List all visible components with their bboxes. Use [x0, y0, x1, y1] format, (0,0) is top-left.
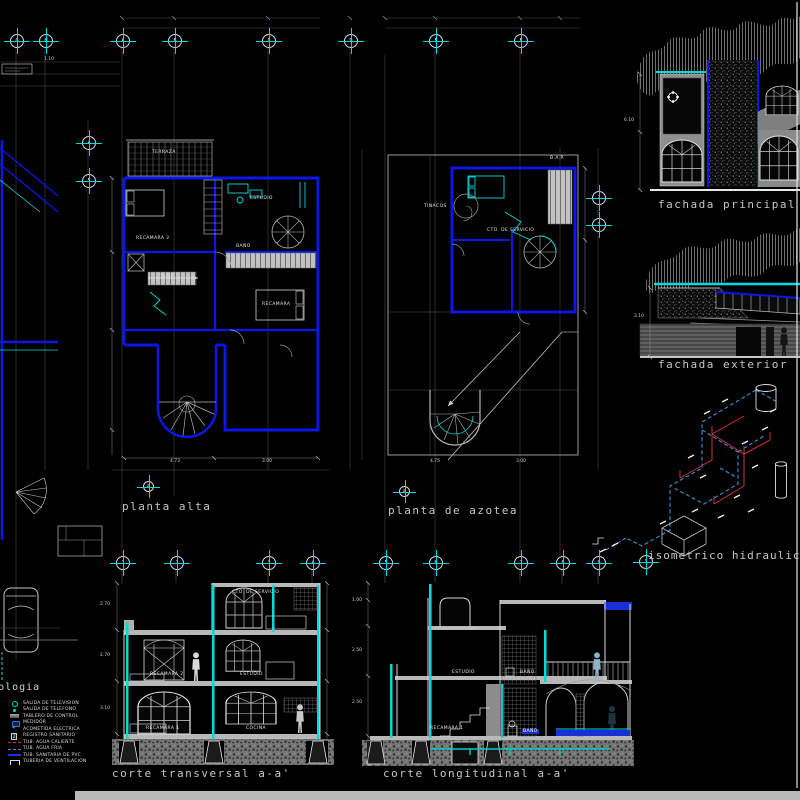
title-isometrico: isometrico hidraulico	[648, 549, 800, 562]
grid-bubble: 4	[306, 556, 320, 570]
grid-bubble: A	[116, 34, 130, 48]
phone-outlet-icon	[8, 707, 21, 713]
dimension-text: 3.00	[262, 459, 272, 464]
dimension-text: 1.00	[352, 598, 362, 603]
grid-bubble: 5	[82, 174, 96, 188]
isometrico-hidraulico	[592, 385, 787, 557]
cad-canvas[interactable]: G H A B C D E F 4 5 2 3 1 2 3 4 5 6 7 8 …	[0, 0, 800, 800]
room-label: TINACOS	[424, 204, 447, 209]
section-room-label: BAÑO	[520, 670, 535, 675]
pvc-pipe-icon	[8, 752, 21, 758]
legend-title: simbologia	[0, 682, 40, 693]
legend-label: ACOMETIDA ELECTRICA	[23, 727, 80, 732]
legend-label: SALIDA DE TELEFONO	[23, 707, 76, 712]
grid-bubble: F	[514, 34, 528, 48]
grid-bubble: 5	[379, 556, 393, 570]
title-fachada-principal: fachada principal	[658, 198, 796, 211]
section-room-label: ESTUDIO	[452, 670, 475, 675]
dimension-text: 4.73	[170, 459, 180, 464]
cold-water-pipe-icon	[8, 746, 21, 752]
legend-label: TUBERIA DE VENTILACION	[23, 759, 86, 764]
planta-alta-plan	[110, 140, 320, 460]
vent-pipe-icon	[8, 759, 21, 765]
left-partial-plan	[0, 64, 102, 680]
corte-longitudinal-section	[362, 570, 634, 766]
legend-label: SALIDA DE TELEVISION	[23, 701, 79, 706]
grid-bubble: 2	[170, 556, 184, 570]
electric-feed-icon	[8, 726, 21, 732]
tv-outlet-icon	[8, 700, 21, 706]
section-room-label: ESTUDIO	[240, 672, 263, 677]
grid-bubble: C	[262, 34, 276, 48]
title-corte-longitudinal: corte longitudinal a-a'	[383, 767, 570, 780]
cad-drawing	[0, 0, 800, 800]
legend-label: TUB. AGUA FRIA	[23, 746, 62, 751]
dimension-text: 3.10	[634, 314, 644, 319]
bottom-scrollbar[interactable]	[75, 791, 800, 800]
room-label: BAÑO	[236, 244, 251, 249]
grid-bubble: 9	[592, 556, 606, 570]
title-planta-alta: planta alta	[122, 500, 211, 513]
corte-transversal-section	[112, 570, 334, 765]
section-room-label: RECAMARA 2	[150, 672, 183, 677]
control-panel-icon	[8, 713, 21, 719]
room-label: TERRAZA	[152, 150, 176, 155]
room-label: CTO. DE SERVICIO	[487, 228, 534, 233]
dimension-text: 2.50	[352, 648, 362, 653]
dimension-text: 6.10	[624, 118, 634, 123]
dimension-text: 1.10	[44, 57, 54, 62]
grid-bubble: 3	[262, 556, 276, 570]
planta-azotea-plan	[388, 155, 587, 460]
cut-mark-bubble: a	[143, 481, 154, 492]
legend-label: TABLERO DE CONTROL	[23, 714, 78, 719]
grid-bubble: 1	[116, 556, 130, 570]
cut-mark-bubble: a	[399, 486, 410, 497]
title-fachada-exterior: fachada exterior	[658, 358, 788, 371]
dimension-text: 2.50	[352, 700, 362, 705]
hot-water-pipe-icon	[8, 739, 21, 745]
fachada-principal-elevation	[636, 16, 800, 192]
sanitary-register-icon	[8, 733, 21, 739]
dimension-text: 3.00	[516, 459, 526, 464]
legend-label: TUB. AGUA CALIENTE	[23, 740, 75, 745]
legend-label: MEDIDOR	[23, 720, 46, 725]
grid-bubble: H	[39, 34, 53, 48]
grid-bubble: 2	[592, 191, 606, 205]
grid-bubble: 3	[592, 218, 606, 232]
grid-bubble: 4	[82, 136, 96, 150]
section-room-label: COCINA	[246, 726, 266, 731]
grid-bubble: 8	[556, 556, 570, 570]
title-corte-transversal: corte transversal a-a'	[112, 767, 291, 780]
grid-bubble: D	[344, 34, 358, 48]
legend-label: REGISTRO SANITARIO	[23, 733, 75, 738]
section-room-label: CTO. DE SERVICIO	[232, 590, 279, 595]
grid-bubble: B	[168, 34, 182, 48]
room-label: SUBE	[160, 274, 174, 279]
section-room-label: RECAMARA 1	[146, 726, 179, 731]
fachada-exterior-elevation	[640, 228, 800, 359]
grid-bubble: G	[10, 34, 24, 48]
grid-bubble: 6	[429, 556, 443, 570]
grid-bubble: E	[429, 34, 443, 48]
dimension-text: 2.70	[100, 653, 110, 658]
room-label: RECAMARA	[262, 302, 290, 307]
title-planta-azotea: planta de azotea	[388, 504, 518, 517]
dimension-text: 2.70	[100, 602, 110, 607]
legend-label: TUB. SANITARIA DE PVC	[23, 753, 81, 758]
legend: simbologia SALIDA DE TELEVISION SALIDA D…	[0, 680, 110, 770]
room-label: ESTUDIO	[250, 196, 273, 201]
room-label: RECAMARA 2	[136, 236, 169, 241]
grid-bubble: 7	[514, 556, 528, 570]
section-room-tag: BAÑO	[522, 729, 539, 734]
section-room-label: RECAMARA 1	[430, 726, 463, 731]
room-label: B.A.P.	[550, 156, 565, 161]
dimension-text: 4.75	[430, 459, 440, 464]
